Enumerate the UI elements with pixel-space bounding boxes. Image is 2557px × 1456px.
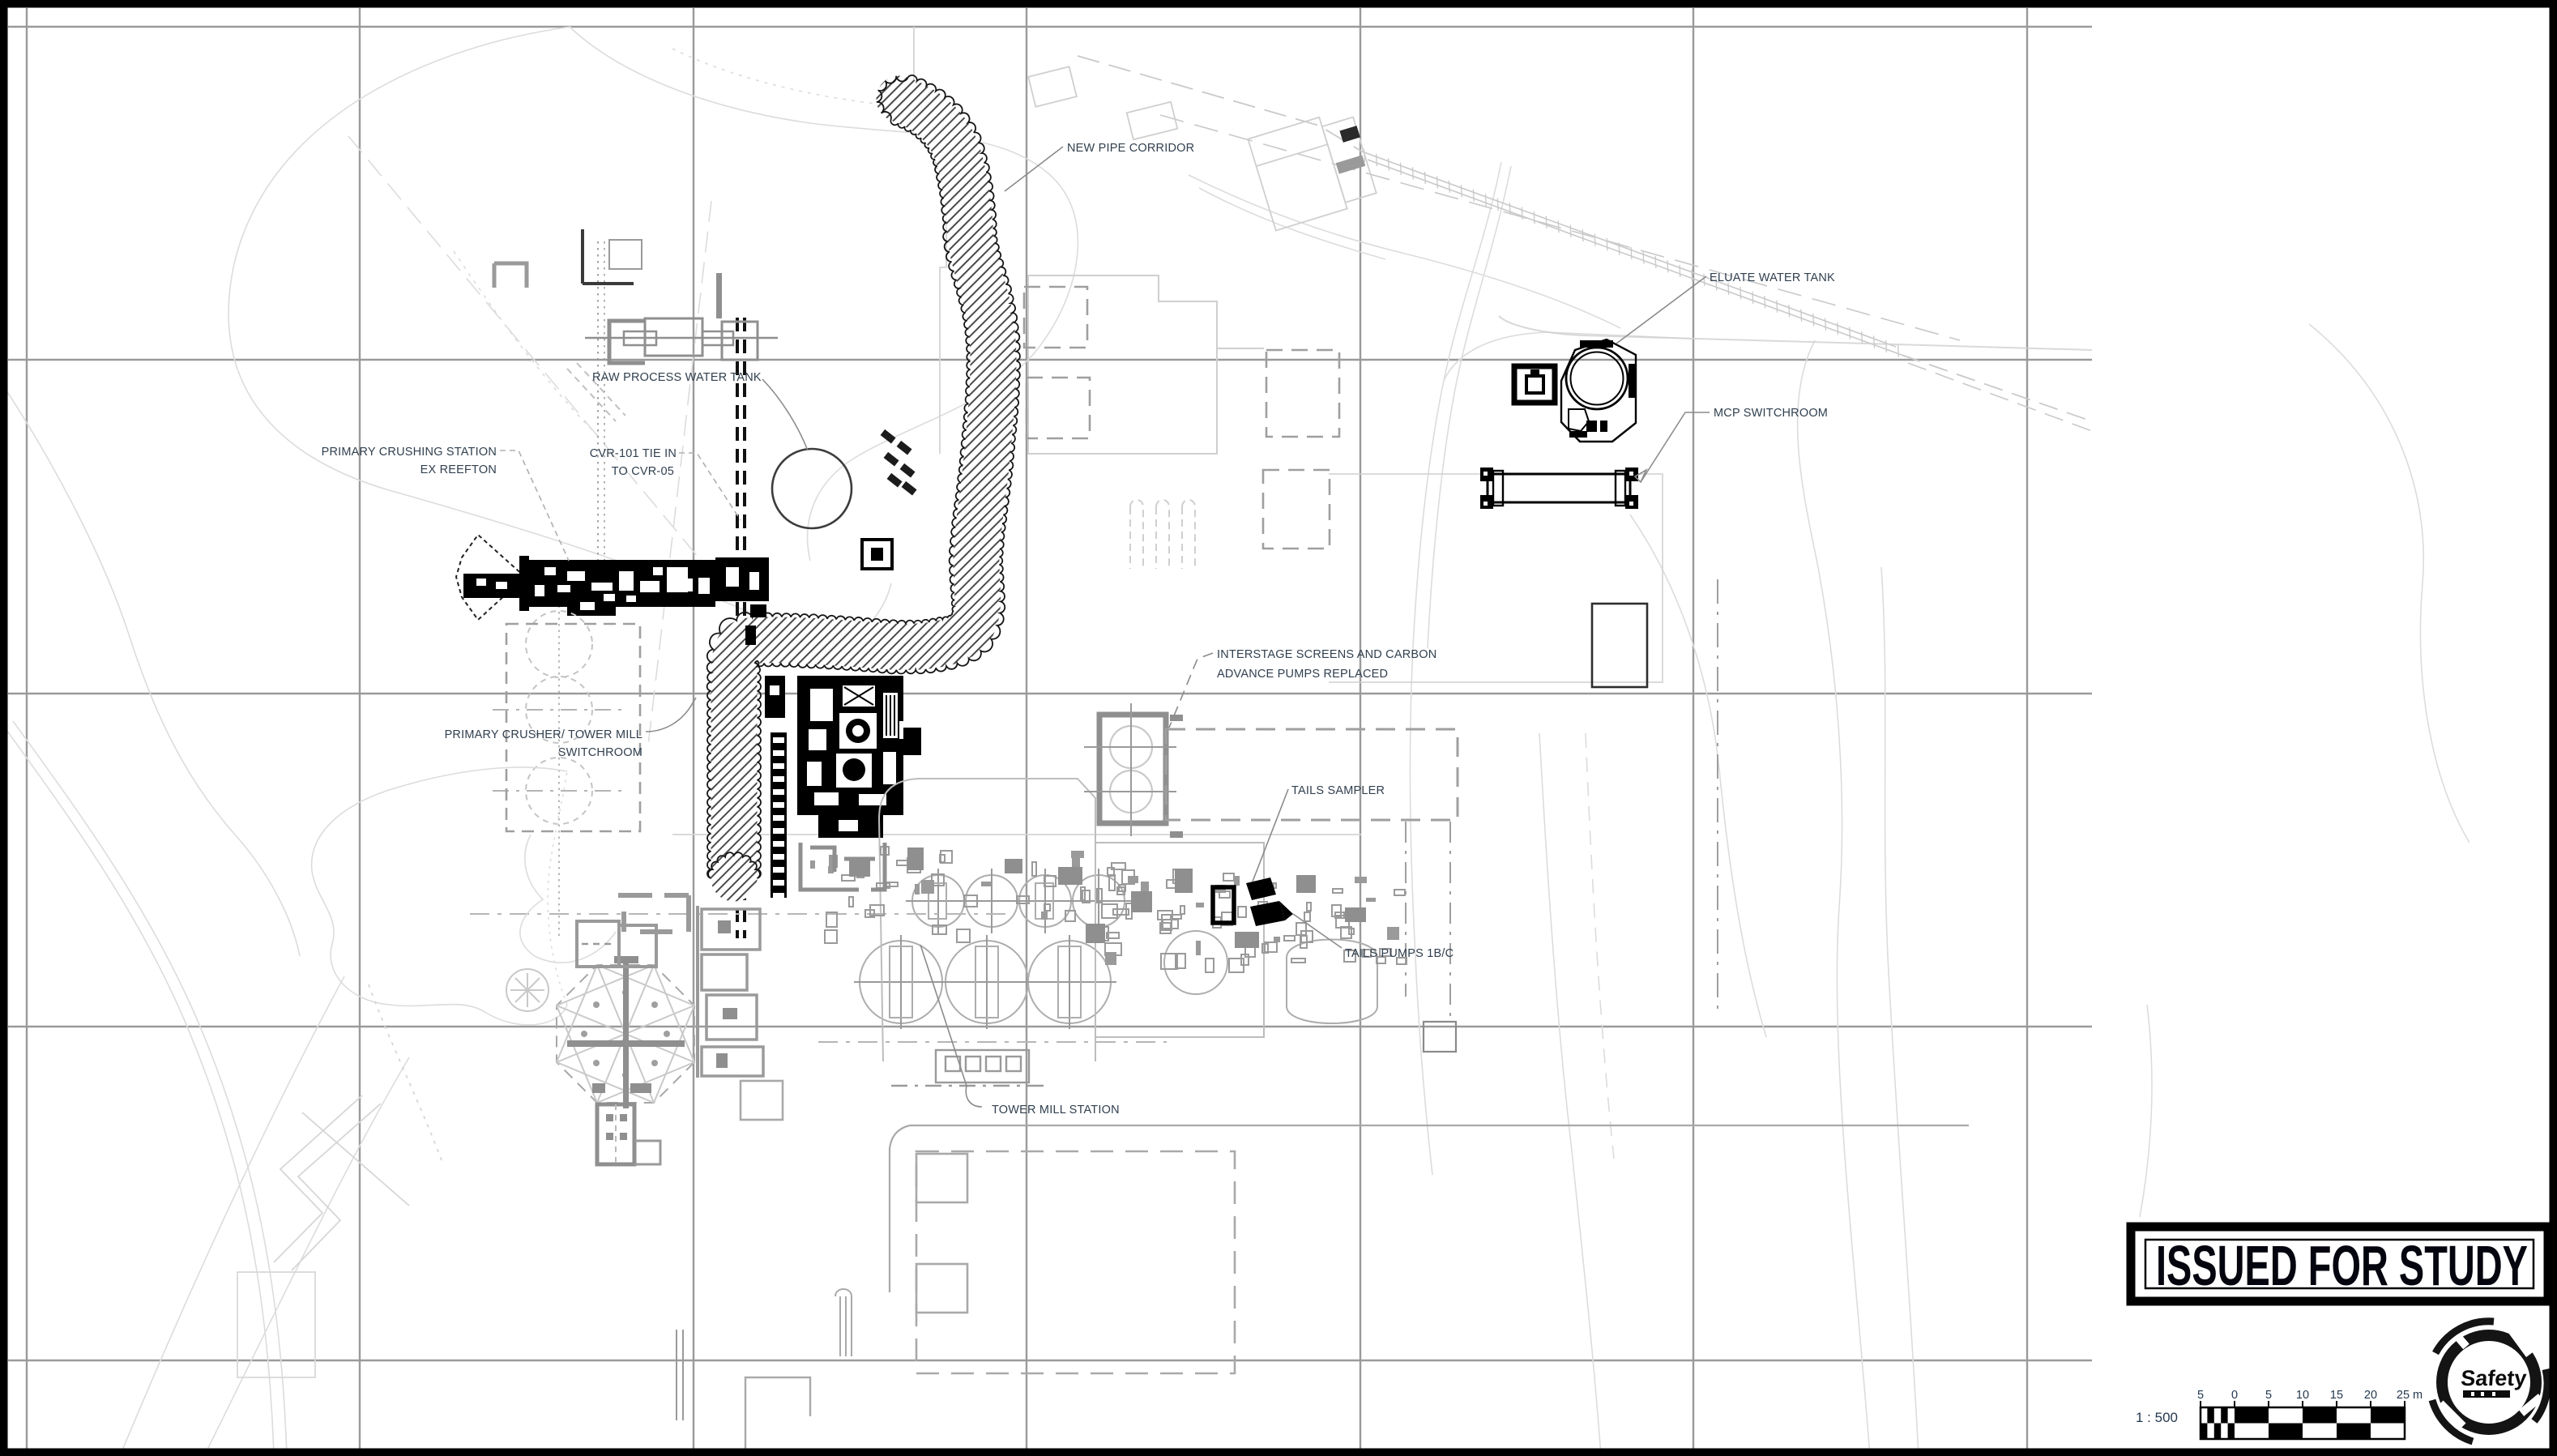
- svg-text:TAILS PUMPS 1B/C: TAILS PUMPS 1B/C: [1345, 947, 1454, 960]
- svg-text:1 : 500: 1 : 500: [2136, 1410, 2178, 1425]
- svg-text:TAILS SAMPLER: TAILS SAMPLER: [1291, 784, 1385, 797]
- svg-text:EX REEFTON: EX REEFTON: [420, 463, 497, 476]
- svg-text:MCP SWITCHROOM: MCP SWITCHROOM: [1714, 407, 1828, 420]
- svg-text:RAW PROCESS WATER TANK: RAW PROCESS WATER TANK: [592, 371, 762, 384]
- svg-text:20: 20: [2364, 1389, 2377, 1402]
- svg-text:NEW PIPE CORRIDOR: NEW PIPE CORRIDOR: [1067, 142, 1194, 155]
- svg-text:15: 15: [2330, 1389, 2343, 1402]
- svg-text:ISSUED FOR STUDY: ISSUED FOR STUDY: [2156, 1234, 2528, 1297]
- svg-text:Safety: Safety: [2460, 1366, 2527, 1390]
- svg-text:0: 0: [2231, 1389, 2238, 1402]
- svg-text:PRIMARY CRUSHING STATION: PRIMARY CRUSHING STATION: [322, 446, 497, 459]
- svg-text:5: 5: [2197, 1389, 2204, 1402]
- svg-text:10: 10: [2296, 1389, 2309, 1402]
- svg-text:5: 5: [2265, 1389, 2272, 1402]
- svg-text:SWITCHROOM: SWITCHROOM: [558, 746, 642, 759]
- svg-text:ELUATE WATER TANK: ELUATE WATER TANK: [1710, 271, 1835, 284]
- svg-text:TO CVR-05: TO CVR-05: [612, 465, 674, 478]
- svg-text:TOWER MILL STATION: TOWER MILL STATION: [992, 1104, 1120, 1117]
- svg-text:ADVANCE PUMPS REPLACED: ADVANCE PUMPS REPLACED: [1217, 668, 1388, 681]
- svg-text:25 m: 25 m: [2397, 1389, 2423, 1402]
- svg-text:INTERSTAGE SCREENS AND CARBON: INTERSTAGE SCREENS AND CARBON: [1217, 648, 1436, 661]
- svg-text:PRIMARY CRUSHER/ TOWER MILL: PRIMARY CRUSHER/ TOWER MILL: [445, 728, 642, 741]
- svg-text:CVR-101 TIE IN: CVR-101 TIE IN: [590, 447, 677, 460]
